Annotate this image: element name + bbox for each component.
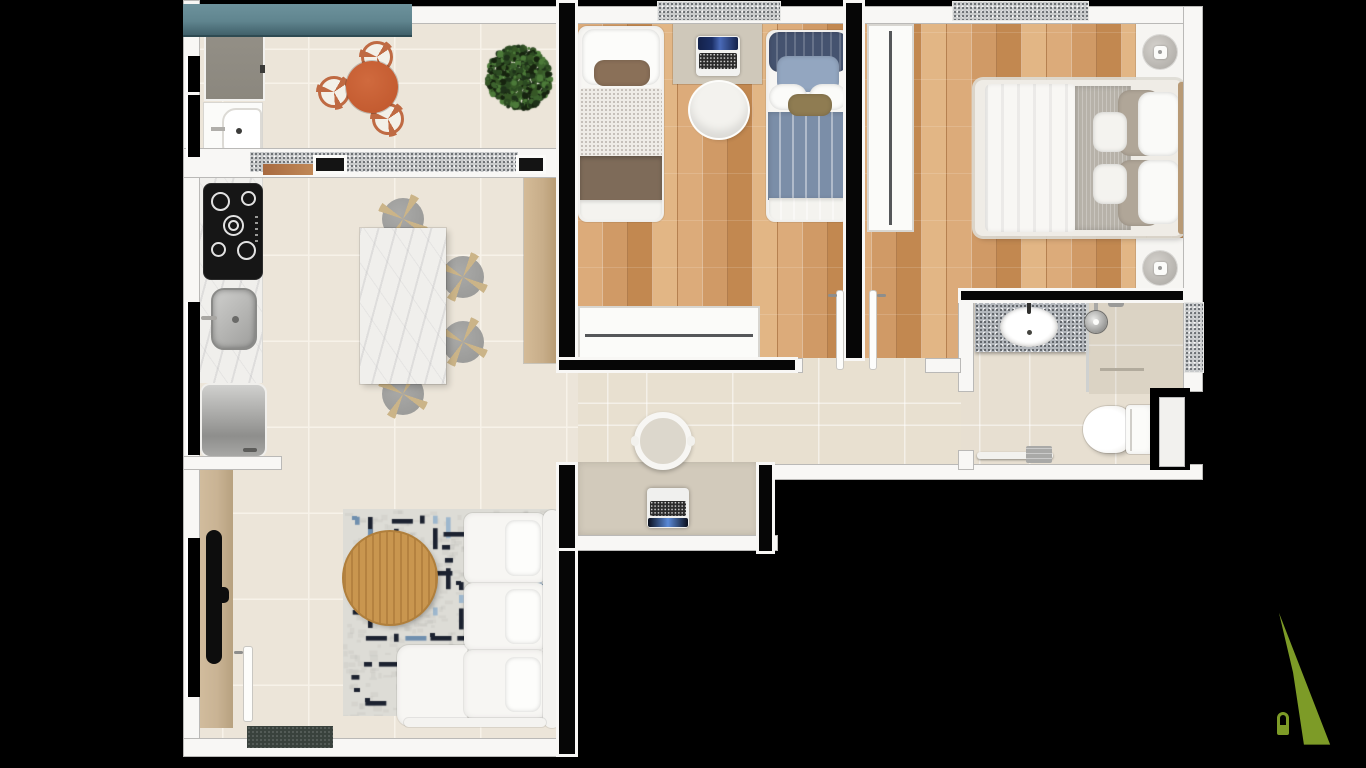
laptop-hallway — [647, 488, 689, 528]
service-shaft — [1150, 388, 1190, 470]
wall-nook-right — [756, 462, 775, 554]
chair-armrest — [687, 436, 695, 446]
door-bedroom-1 — [836, 290, 844, 370]
laptop-keyboard — [699, 53, 737, 69]
pillow-white — [1138, 160, 1180, 224]
sink-drain — [232, 316, 239, 323]
dining-chair — [318, 76, 350, 108]
wardrobe-bedroom-1 — [578, 306, 760, 362]
wall-nook-bottom — [556, 535, 778, 551]
laundry-faucet-icon — [211, 127, 225, 131]
potted-plant — [484, 43, 554, 113]
window-balcony-left — [186, 95, 200, 157]
table-lamp — [1143, 251, 1177, 285]
wall-master-bath — [958, 288, 1186, 303]
single-bed-left — [578, 26, 664, 222]
table-lamp — [1143, 35, 1177, 69]
wood-sideboard — [524, 177, 556, 363]
door-handle-icon — [234, 651, 243, 654]
entry-door — [243, 646, 253, 722]
sofa-armrest-bar — [404, 718, 546, 727]
balcony-slider-panel — [516, 155, 546, 174]
coffee-table — [344, 532, 436, 624]
wall-nook-left — [556, 462, 578, 554]
throw-pillow — [1093, 164, 1127, 204]
wall-bath-left-upper — [958, 300, 974, 392]
laptop-screen — [698, 37, 738, 50]
wall-between-bedrooms — [843, 0, 865, 361]
wall-kitchen-stub — [183, 456, 282, 470]
wall-bath-left-lower — [958, 450, 974, 470]
window-sill-bedroom-1 — [658, 2, 780, 20]
wall-bedroom1-left — [556, 0, 578, 361]
brand-logo — [1270, 610, 1334, 746]
laptop-bedroom — [696, 36, 740, 76]
double-bed — [975, 80, 1183, 236]
planter-box — [183, 4, 412, 37]
backrest-pillow — [505, 589, 541, 644]
washing-machine — [204, 33, 265, 101]
logo-door-fill — [1279, 725, 1287, 733]
floor-plan-render — [0, 0, 1366, 768]
hallway-chair — [634, 412, 692, 470]
chair-armrest — [631, 436, 639, 446]
window-living-left — [186, 538, 200, 697]
toilet — [1083, 406, 1155, 453]
burner — [223, 215, 244, 236]
window-kitchen-left — [186, 302, 200, 455]
kitchen-faucet-icon — [201, 316, 217, 320]
tv — [206, 530, 222, 664]
balcony-threshold — [263, 164, 313, 175]
door-handle-icon — [877, 294, 886, 297]
sofa-cushion — [464, 650, 546, 718]
burner — [211, 192, 230, 211]
door-bedroom-2 — [869, 290, 877, 370]
balcony-slider-panel — [313, 155, 347, 174]
burner — [211, 242, 226, 257]
window-sill-bathroom — [1185, 303, 1203, 372]
wall-bottom-right — [770, 464, 1203, 480]
tv-stand — [220, 587, 229, 603]
desk-chair — [690, 82, 748, 138]
burner — [237, 241, 256, 260]
duvet-blue — [768, 112, 848, 200]
backrest-pillow — [505, 657, 541, 712]
sofa-cushion — [464, 583, 546, 650]
blanket-brown — [580, 156, 662, 202]
bar-stool — [442, 256, 484, 298]
lamp-finial — [1158, 266, 1162, 270]
window-left-small — [186, 56, 200, 92]
wall-master-door-jamb — [925, 358, 961, 373]
shower-head-icon — [1085, 311, 1107, 333]
backrest-pillow — [505, 520, 541, 576]
wardrobe-rail — [889, 31, 892, 225]
wall-bottom-left — [183, 738, 578, 757]
bed-foot-fold — [580, 200, 662, 220]
round-dining-table — [346, 61, 398, 113]
kitchen-island — [360, 228, 446, 384]
lamp-finial — [1158, 50, 1162, 54]
laptop-keyboard — [650, 501, 686, 516]
basin-drain — [1027, 330, 1032, 335]
wardrobe-bedroom-2 — [867, 24, 914, 232]
burner — [241, 191, 256, 206]
laundry-drain — [236, 128, 242, 134]
wardrobe-rail — [585, 334, 753, 337]
bar-stool — [442, 321, 484, 363]
single-bed-right — [766, 30, 850, 222]
shaft-duct — [1160, 398, 1184, 466]
washer-latch — [260, 65, 265, 73]
throw-pillow — [1093, 112, 1127, 152]
cooktop-knobs — [255, 216, 258, 242]
shower-drain — [1100, 368, 1144, 371]
kitchen-sink — [211, 288, 257, 350]
doormat — [247, 726, 333, 748]
fridge-handle — [243, 448, 257, 452]
vanity-counter — [975, 300, 1087, 352]
refrigerator — [200, 383, 267, 458]
laptop-screen-edge — [648, 518, 688, 527]
wall-bedrooms-hall — [556, 357, 798, 373]
door-handle-icon — [828, 294, 837, 297]
bed-foot-fold — [769, 198, 847, 220]
cooktop — [204, 184, 262, 279]
window-sill-bedroom-2 — [953, 2, 1088, 20]
pillow-white — [1138, 92, 1180, 156]
accent-pillow-brown — [594, 60, 650, 86]
wall-living-right — [556, 548, 578, 757]
duvet-white — [985, 84, 1077, 232]
pillow-olive — [788, 94, 832, 116]
toilet-seam — [1130, 409, 1132, 451]
sofa-cushion — [464, 513, 546, 583]
towel — [1026, 446, 1052, 463]
